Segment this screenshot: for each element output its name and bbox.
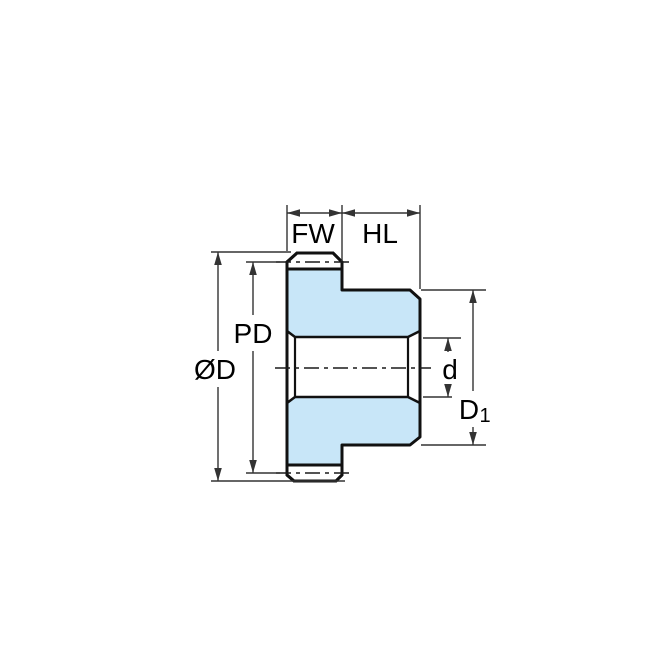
pitch-diameter-label: PD [234, 318, 273, 349]
hub-diameter-label-main: D [459, 394, 479, 425]
hub-diameter-label-subscript: 1 [479, 405, 490, 427]
hub-length-label: HL [362, 218, 398, 249]
bore-diameter-label: d [442, 354, 458, 385]
outside-diameter-label: ØD [194, 354, 236, 385]
bore-cutout [287, 331, 420, 403]
face-width-label: FW [291, 218, 335, 249]
gear-dimension-diagram: FW HL ØD PD d D 1 [0, 0, 670, 670]
gear-dimension-diagram-page: FW HL ØD PD d D 1 [0, 0, 670, 670]
